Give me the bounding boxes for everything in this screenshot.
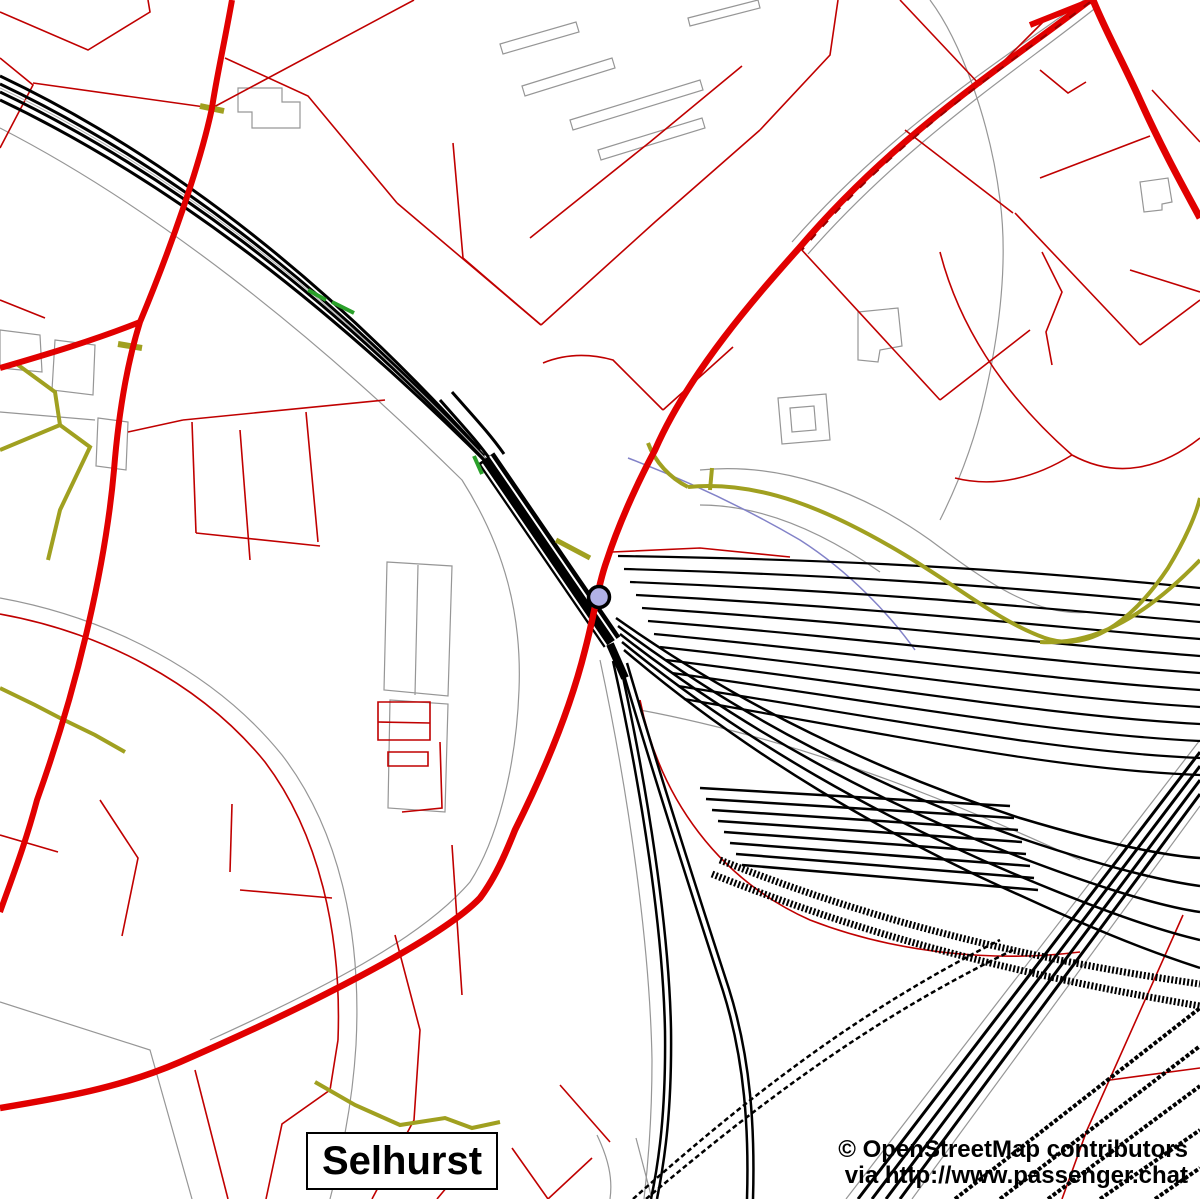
- attribution-line1: © OpenStreetMap contributors: [838, 1137, 1188, 1163]
- primary-roads-layer: [0, 0, 1200, 1108]
- attribution-line2: via http://www.passenger.chat: [838, 1163, 1188, 1189]
- primary-road-northeast: [1093, 0, 1200, 218]
- primary-road-west: [0, 0, 232, 912]
- railway-layer: [0, 76, 1200, 1199]
- map-canvas[interactable]: Selhurst © OpenStreetMap contributors vi…: [0, 0, 1200, 1199]
- depot-loop-footpath: [688, 486, 1200, 642]
- attribution: © OpenStreetMap contributors via http://…: [838, 1137, 1188, 1189]
- stream-layer: [628, 458, 915, 650]
- place-label: Selhurst: [306, 1132, 498, 1190]
- station-marker[interactable]: [589, 587, 610, 608]
